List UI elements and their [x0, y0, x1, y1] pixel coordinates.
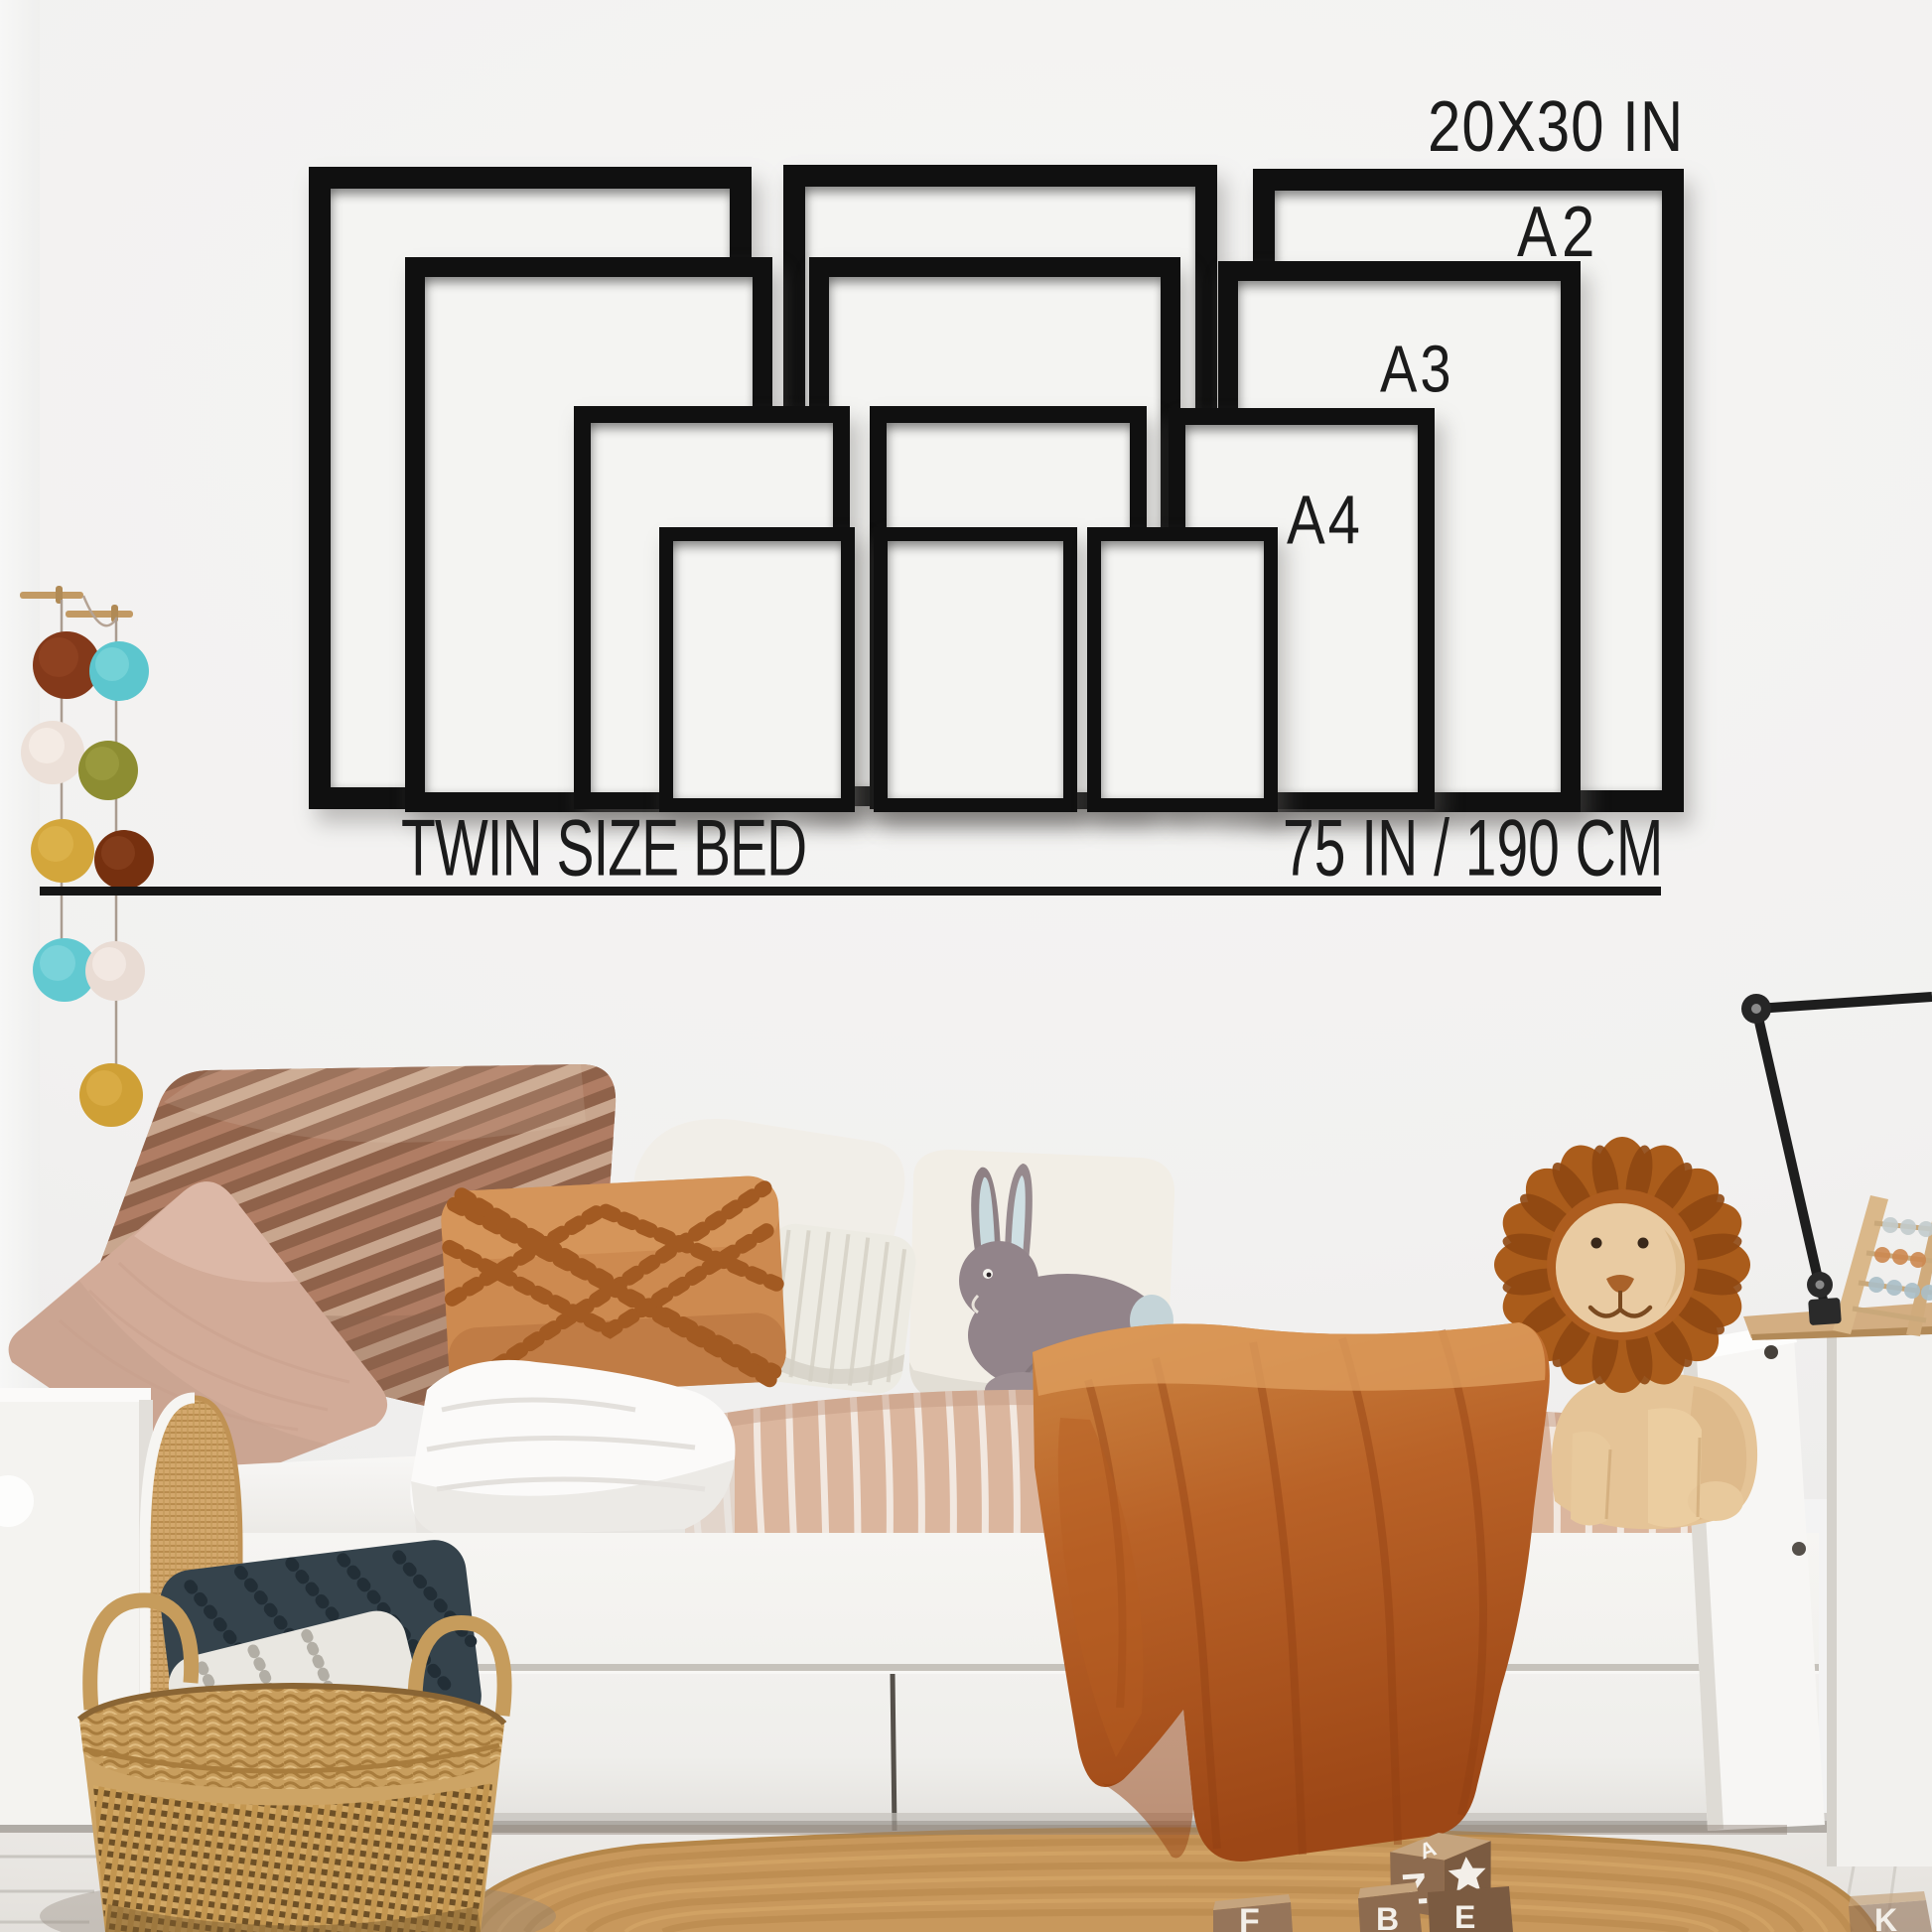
svg-text:B: B — [1376, 1901, 1399, 1932]
svg-text:E: E — [1454, 1899, 1475, 1932]
svg-text:F: F — [1239, 1902, 1260, 1932]
svg-text:K: K — [1874, 1902, 1897, 1932]
